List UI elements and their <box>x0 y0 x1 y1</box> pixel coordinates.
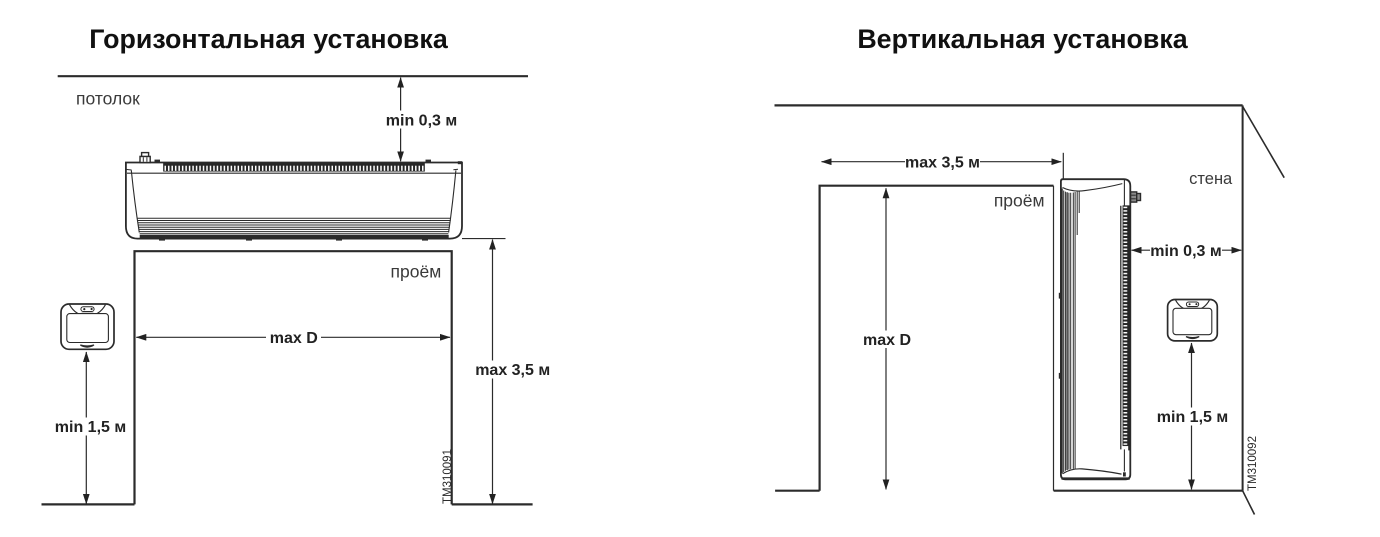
svg-text:max D: max D <box>270 330 318 347</box>
svg-text:потолок: потолок <box>76 89 140 109</box>
svg-text:min 0,3 м: min 0,3 м <box>386 113 457 130</box>
svg-text:проём: проём <box>994 191 1045 211</box>
svg-text:проём: проём <box>391 262 442 282</box>
svg-text:стена: стена <box>1189 170 1233 188</box>
svg-text:max 3,5 м: max 3,5 м <box>905 154 980 171</box>
svg-text:min 0,3 м: min 0,3 м <box>1150 243 1221 260</box>
svg-text:min 1,5 м: min 1,5 м <box>55 419 126 436</box>
svg-text:Горизонтальная установка: Горизонтальная установка <box>89 24 449 54</box>
svg-text:max 3,5 м: max 3,5 м <box>475 362 550 379</box>
svg-text:min 1,5 м: min 1,5 м <box>1157 409 1228 426</box>
svg-text:TM310091: TM310091 <box>442 449 454 504</box>
svg-text:max D: max D <box>863 332 911 349</box>
svg-text:Вертикальная установка: Вертикальная установка <box>857 24 1188 54</box>
svg-text:TM310092: TM310092 <box>1247 436 1259 491</box>
